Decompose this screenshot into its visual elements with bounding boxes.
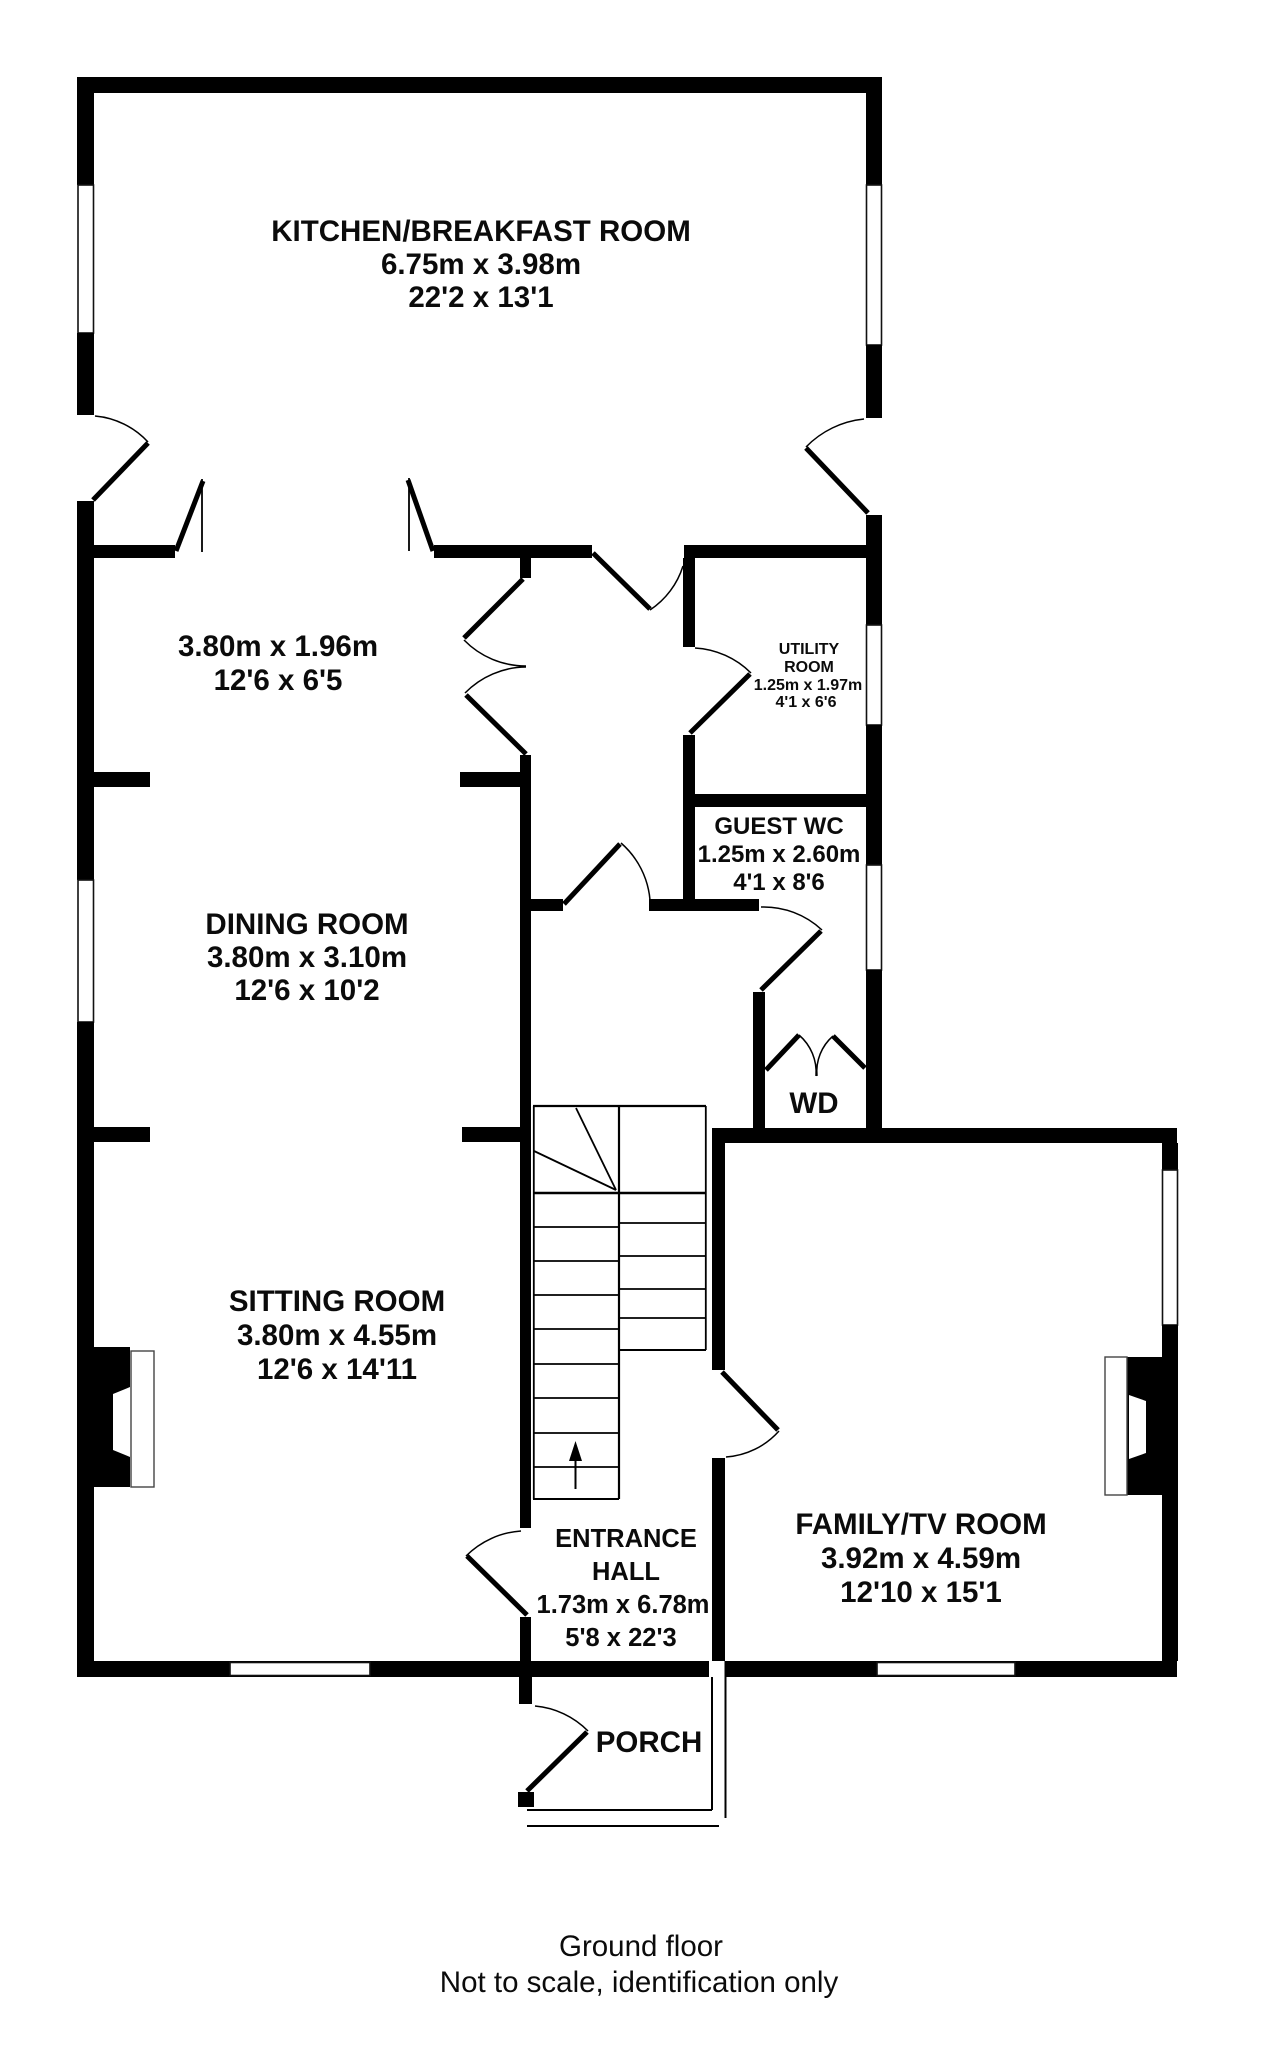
svg-text:ROOM: ROOM: [784, 659, 834, 676]
svg-text:12'6 x 14'11: 12'6 x 14'11: [257, 1353, 417, 1386]
svg-text:Ground floor: Ground floor: [559, 1930, 723, 1963]
svg-text:FAMILY/TV ROOM: FAMILY/TV ROOM: [795, 1508, 1046, 1541]
svg-text:WD: WD: [789, 1087, 838, 1120]
svg-text:SITTING ROOM: SITTING ROOM: [229, 1285, 445, 1318]
svg-text:PORCH: PORCH: [596, 1726, 703, 1759]
svg-text:1.25m x 1.97m: 1.25m x 1.97m: [754, 677, 863, 694]
svg-text:12'6 x 6'5: 12'6 x 6'5: [214, 664, 343, 697]
svg-text:3.80m x 1.96m: 3.80m x 1.96m: [178, 630, 378, 663]
svg-text:1.25m x 2.60m: 1.25m x 2.60m: [698, 841, 861, 868]
svg-text:6.75m x 3.98m: 6.75m x 3.98m: [381, 248, 581, 281]
svg-text:22'2 x 13'1: 22'2 x 13'1: [408, 281, 553, 314]
svg-text:GUEST WC: GUEST WC: [714, 813, 843, 840]
svg-text:12'6 x 10'2: 12'6 x 10'2: [234, 974, 379, 1007]
svg-text:3.80m x 3.10m: 3.80m x 3.10m: [207, 941, 407, 974]
svg-text:ENTRANCE: ENTRANCE: [555, 1525, 697, 1553]
svg-text:4'1 x 8'6: 4'1 x 8'6: [733, 869, 825, 896]
svg-text:3.92m x 4.59m: 3.92m x 4.59m: [821, 1542, 1021, 1575]
svg-text:3.80m x 4.55m: 3.80m x 4.55m: [237, 1319, 437, 1352]
svg-text:DINING ROOM: DINING ROOM: [205, 908, 408, 941]
svg-text:4'1 x 6'6: 4'1 x 6'6: [776, 694, 837, 711]
svg-text:KITCHEN/BREAKFAST ROOM: KITCHEN/BREAKFAST ROOM: [271, 215, 691, 248]
svg-text:5'8 x 22'3: 5'8 x 22'3: [565, 1624, 676, 1652]
svg-text:1.73m x 6.78m: 1.73m x 6.78m: [537, 1591, 710, 1619]
svg-text:12'10 x 15'1: 12'10 x 15'1: [840, 1576, 1002, 1609]
svg-text:UTILITY: UTILITY: [779, 641, 840, 658]
svg-text:HALL: HALL: [592, 1558, 660, 1586]
svg-text:Not to scale, identification o: Not to scale, identification only: [440, 1966, 839, 1999]
